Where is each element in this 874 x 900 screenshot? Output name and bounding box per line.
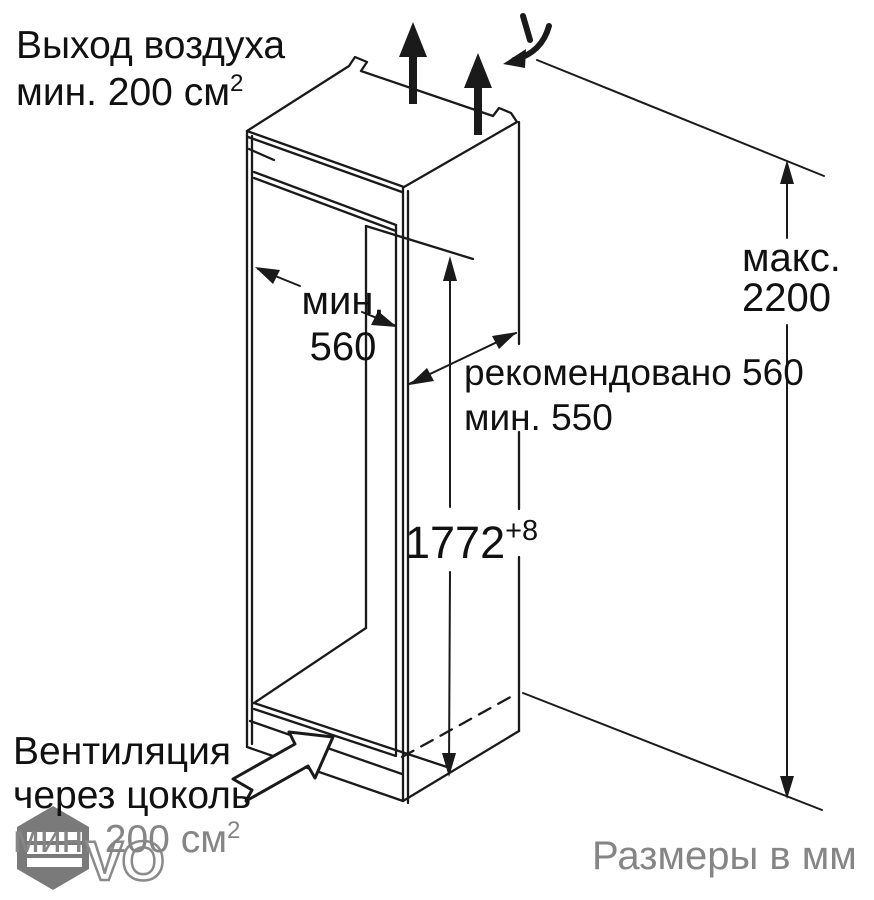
hidden-edge-dashed xyxy=(402,694,516,757)
niche-depth-line2: мин. 550 xyxy=(464,395,804,440)
air-deflect-arrow-icon xyxy=(503,16,549,68)
air-outlet-label: Выход воздуха мин. 200 см2 xyxy=(16,22,285,116)
niche-depth-label: рекомендовано 560 мин. 550 xyxy=(464,350,804,440)
dim-arrowheads xyxy=(255,160,794,799)
plinth-vent-line3: мин. 200 см2 xyxy=(13,818,251,862)
niche-depth-line1: рекомендовано 560 xyxy=(464,350,804,395)
max-height-label: макс. 2200 xyxy=(742,238,841,318)
air-outlet-sup: 2 xyxy=(230,70,243,97)
air-outlet-line1: Выход воздуха xyxy=(16,22,285,69)
niche-width-line2: 560 xyxy=(284,324,402,370)
max-height-line2: 2200 xyxy=(742,278,841,318)
niche-width-label: мин. 560 xyxy=(284,278,402,370)
plinth-vent-line2: через цоколь xyxy=(13,774,251,818)
units-note: Размеры в мм xyxy=(592,834,857,879)
niche-height-tolerance: +8 xyxy=(505,515,538,547)
max-height-line1: макс. xyxy=(742,238,841,278)
air-outlet-line2: мин. 200 см2 xyxy=(16,69,285,116)
niche-height-label: 1772+8 xyxy=(405,515,538,569)
plinth-vent-sup: 2 xyxy=(227,817,240,844)
floor-line xyxy=(523,693,822,810)
plinth-vent-label: Вентиляция через цоколь мин. 200 см2 xyxy=(13,730,251,862)
plinth-vent-line1: Вентиляция xyxy=(13,730,251,774)
niche-height-value: 1772 xyxy=(405,517,505,568)
installation-diagram: VO Выход воздуха мин. 200 см2 мин. 560 р… xyxy=(0,0,874,900)
niche-width-line1: мин. xyxy=(284,278,402,324)
air-out-arrow-icon xyxy=(399,22,492,135)
ceiling-line xyxy=(537,60,824,176)
